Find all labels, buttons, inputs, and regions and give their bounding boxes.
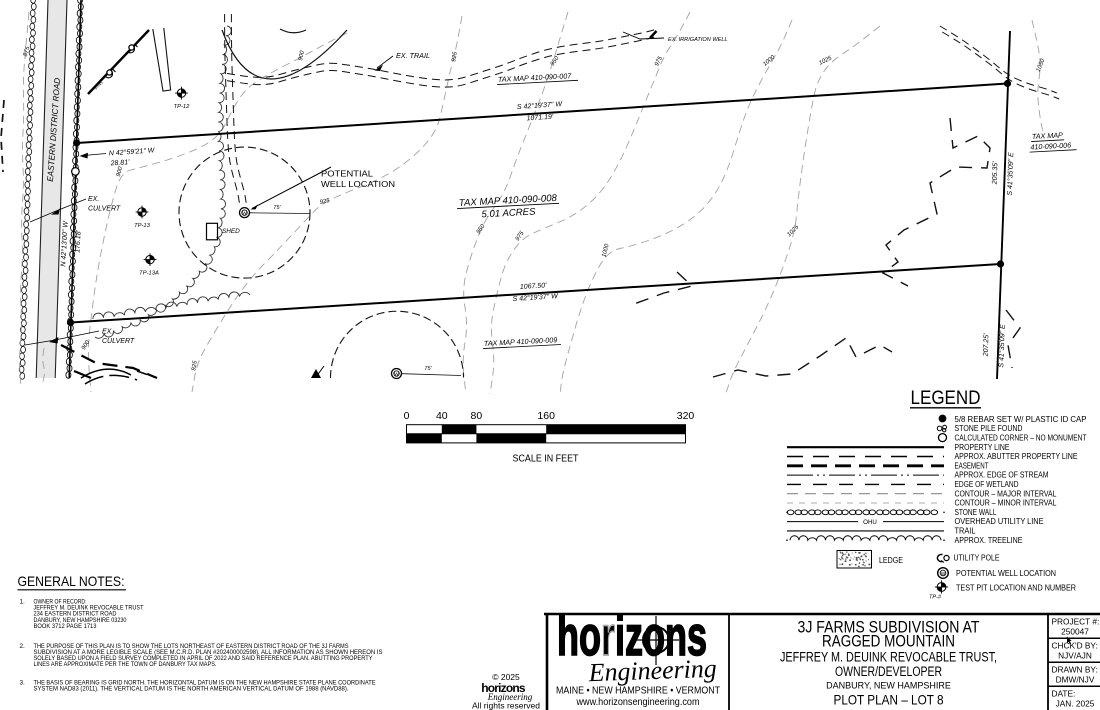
svg-text:80: 80 [471,410,483,422]
svg-text:28.81': 28.81' [109,159,130,167]
svg-text:5/8 REBAR SET W/ PLASTIC ID CA: 5/8 REBAR SET W/ PLASTIC ID CAP [955,415,1088,424]
svg-text:CONTOUR – MAJOR INTERVAL: CONTOUR – MAJOR INTERVAL [955,489,1057,498]
svg-text:DANBURY, NEW HAMPSHIRE: DANBURY, NEW HAMPSHIRE [826,681,951,691]
svg-text:JAN. 2025: JAN. 2025 [1056,699,1095,709]
svg-text:STONE PILE FOUND: STONE PILE FOUND [955,424,1023,433]
svg-text:320: 320 [677,410,695,422]
svg-text:205.35': 205.35' [992,161,1000,186]
svg-text:CULVERT: CULVERT [102,338,135,345]
svg-text:OWNER/DEVELOPER: OWNER/DEVELOPER [835,664,942,679]
svg-text:75': 75' [424,366,432,372]
svg-text:1.: 1. [20,599,26,606]
svg-text:40: 40 [436,410,448,422]
svg-text:LEGEND: LEGEND [911,387,981,409]
svg-text:WELL LOCATION: WELL LOCATION [321,180,395,189]
svg-text:160: 160 [537,410,555,422]
svg-text:250047: 250047 [1061,627,1089,637]
svg-text:EDGE OF WETLAND: EDGE OF WETLAND [955,480,1019,489]
svg-text:LINES ARE APPROXIMATE PER THE: LINES ARE APPROXIMATE PER THE TOWN OF DA… [34,661,217,668]
svg-text:SCALE IN FEET: SCALE IN FEET [513,454,579,465]
svg-text:EX. TRAIL: EX. TRAIL [396,51,430,60]
svg-text:W: W [941,571,946,577]
svg-text:OVERHEAD UTILITY LINE: OVERHEAD UTILITY LINE [955,517,1044,526]
svg-text:TEST PIT LOCATION AND NUMBER: TEST PIT LOCATION AND NUMBER [956,584,1076,593]
svg-text:STONE WALL: STONE WALL [955,508,997,517]
svg-text:POTENTIAL WELL LOCATION: POTENTIAL WELL LOCATION [956,569,1056,578]
svg-text:PROJECT #:: PROJECT #: [1052,617,1100,627]
svg-text:SHED: SHED [222,228,240,235]
svg-text:EX.: EX. [88,196,99,203]
svg-text:75': 75' [273,205,281,211]
svg-text:RAGGED MOUNTAIN: RAGGED MOUNTAIN [822,633,955,651]
svg-text:SYSTEM NAD83 (2011). THE VERTI: SYSTEM NAD83 (2011). THE VERTICAL DATUM … [34,686,349,693]
svg-text:S 41°35'09" E: S 41°35'09" E [997,324,1007,368]
svg-text:CONTOUR – MINOR INTERVAL: CONTOUR – MINOR INTERVAL [955,499,1057,508]
svg-text:EASEMENT: EASEMENT [955,461,989,470]
svg-text:LEDGE: LEDGE [879,556,903,565]
svg-text:GENERAL NOTES:: GENERAL NOTES: [18,573,125,589]
svg-text:MAINE • NEW HAMPSHIRE • VERMON: MAINE • NEW HAMPSHIRE • VERMONT [556,686,720,697]
svg-text:TP-12: TP-12 [174,104,191,110]
svg-text:207.25': 207.25' [983,333,991,358]
svg-text:CHCK'D BY:: CHCK'D BY: [1052,641,1098,651]
svg-text:BOOK 3712 PAGE 1713: BOOK 3712 PAGE 1713 [34,623,97,630]
svg-text:176.18': 176.18' [74,229,82,253]
svg-text:CALCULATED CORNER – NO MONUMEN: CALCULATED CORNER – NO MONUMENT [955,434,1087,443]
svg-text:DMW/NJV: DMW/NJV [1056,675,1095,685]
svg-text:JEFFREY M. DEUINK REVOCABLE TR: JEFFREY M. DEUINK REVOCABLE TRUST, [780,650,997,665]
svg-text:2.: 2. [20,643,26,650]
svg-text:CULVERT: CULVERT [88,206,121,213]
svg-text:www.horizonsengineering.com: www.horizonsengineering.com [576,697,700,708]
svg-text:TP-#: TP-# [929,595,942,601]
svg-text:0: 0 [404,410,410,422]
svg-text:EX.: EX. [102,329,113,336]
svg-text:TP-13A: TP-13A [139,271,159,277]
svg-text:POTENTIAL: POTENTIAL [321,170,374,179]
svg-text:TP-13: TP-13 [134,223,151,229]
svg-text:UTILITY POLE: UTILITY POLE [954,554,1000,563]
svg-text:W: W [394,372,399,377]
svg-text:OHU: OHU [863,519,877,526]
svg-text:DRAWN BY:: DRAWN BY: [1052,665,1098,675]
svg-text:TRAIL: TRAIL [955,527,976,536]
svg-text:DATE:: DATE: [1052,689,1076,699]
svg-text:NJV/AJN: NJV/AJN [1058,651,1092,661]
svg-text:All rights reserved: All rights reserved [472,701,540,710]
svg-text:W: W [242,211,247,216]
svg-text:APPROX. ABUTTER PROPERTY LINE: APPROX. ABUTTER PROPERTY LINE [955,452,1078,461]
svg-text:S 41°35'09" E: S 41°35'09" E [1006,152,1016,196]
svg-text:APPROX. TREELINE: APPROX. TREELINE [955,536,1023,545]
svg-text:APPROX. EDGE OF STREAM: APPROX. EDGE OF STREAM [955,471,1049,480]
svg-text:3.: 3. [20,679,26,686]
svg-text:EX. IRRIGATION WELL: EX. IRRIGATION WELL [668,37,728,43]
svg-text:TAX MAP: TAX MAP [1032,130,1064,141]
svg-text:PROPERTY LINE: PROPERTY LINE [955,443,1010,452]
svg-text:PLOT PLAN – LOT 8: PLOT PLAN – LOT 8 [834,692,944,708]
svg-text:Engineering: Engineering [587,654,717,687]
